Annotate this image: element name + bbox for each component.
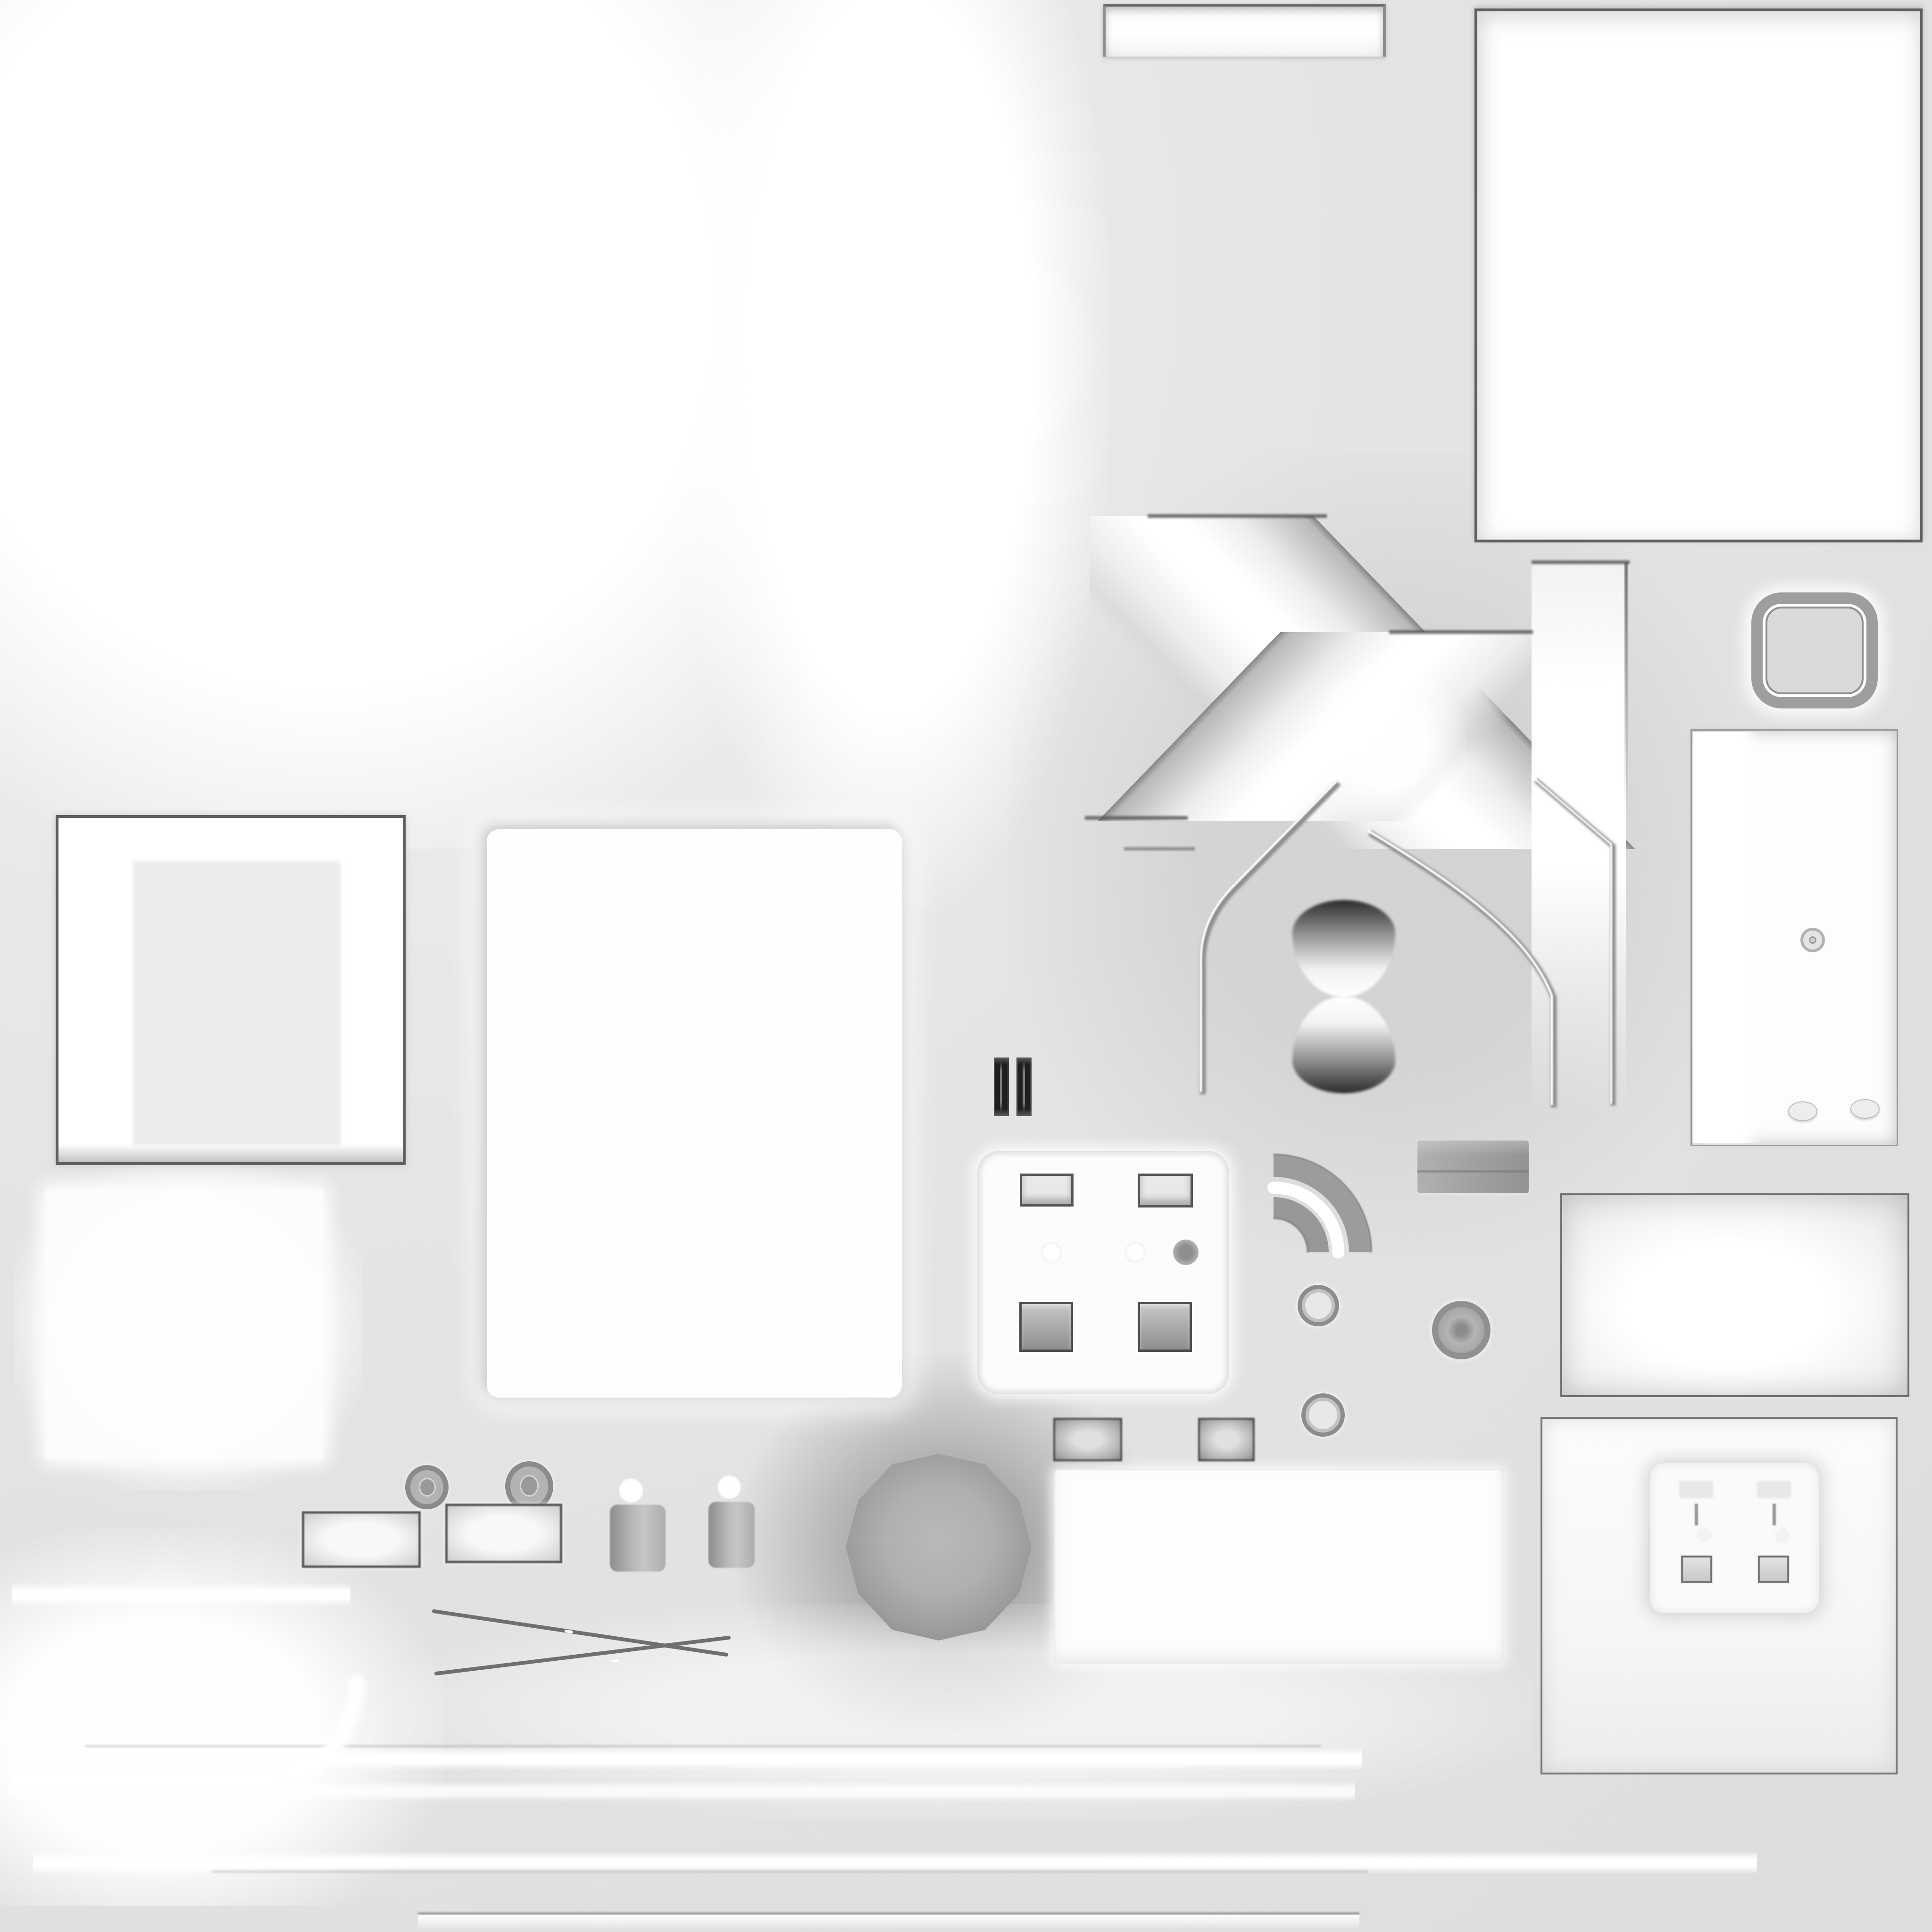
panel-foot-right bbox=[1850, 1099, 1880, 1119]
control-panel bbox=[977, 1151, 1229, 1394]
panel-foot-left bbox=[1788, 1101, 1817, 1121]
streak-corner-band bbox=[12, 1583, 350, 1607]
washer-top bbox=[1298, 1285, 1339, 1326]
strip-4-shadowline bbox=[418, 1912, 1359, 1915]
switch-socket-left bbox=[1681, 1556, 1712, 1583]
left-faint-rect bbox=[45, 1189, 324, 1460]
prong-slot-ridge bbox=[1023, 1061, 1025, 1112]
top-slot-bar bbox=[1103, 4, 1386, 57]
hourglass bbox=[1292, 900, 1395, 1093]
hourglass-top-lobe bbox=[1292, 900, 1395, 997]
texture-canvas bbox=[0, 0, 1932, 1932]
strip-4 bbox=[418, 1915, 1359, 1930]
left-frame-inner-panel bbox=[133, 861, 341, 1145]
panel-dot-dark bbox=[1173, 1240, 1199, 1265]
switch-slot-right bbox=[1773, 1504, 1776, 1525]
panel-dot-mid bbox=[1124, 1241, 1146, 1263]
edge-right-band-side bbox=[1624, 562, 1628, 817]
switch-dot-right bbox=[1774, 1528, 1790, 1543]
right-mid-rect bbox=[1560, 1193, 1909, 1397]
washer-bottom bbox=[1301, 1393, 1345, 1437]
bottom-right-rect bbox=[1541, 1417, 1898, 1774]
prong-slot-left bbox=[994, 1058, 1009, 1116]
cylinder-left bbox=[610, 1505, 666, 1572]
edge-band2-tip bbox=[1085, 816, 1188, 820]
strip-3-shadowline bbox=[212, 1871, 1368, 1873]
bordered-rect-left bbox=[302, 1511, 421, 1568]
white-dot-left bbox=[619, 1478, 643, 1503]
edge-band1-cut bbox=[1124, 847, 1195, 850]
inset-rect-right bbox=[1198, 1418, 1255, 1461]
switch-socket-right bbox=[1758, 1556, 1789, 1583]
prong-slot-ridge bbox=[1000, 1061, 1002, 1112]
panel-left-bright-band bbox=[1693, 732, 1763, 1143]
left-frame-square bbox=[56, 815, 406, 1165]
gray-bar-ridge bbox=[1417, 1170, 1529, 1173]
right-tall-panel bbox=[1690, 729, 1898, 1146]
bottom-center-rect bbox=[1054, 1469, 1503, 1664]
switch-label-left bbox=[1679, 1481, 1713, 1498]
strip-1 bbox=[29, 1747, 1362, 1771]
inset-rect-left bbox=[1053, 1418, 1122, 1461]
cylinder-right bbox=[708, 1502, 755, 1568]
panel-dot-left bbox=[1041, 1242, 1062, 1264]
grommet-left-hole bbox=[419, 1478, 436, 1497]
edge-right-band-top bbox=[1532, 560, 1630, 564]
port-ring bbox=[1432, 1301, 1491, 1359]
panel-window-top-right bbox=[1138, 1174, 1193, 1207]
switch-label-right bbox=[1757, 1481, 1791, 1498]
screen-bezel bbox=[1751, 592, 1878, 708]
right-vertical-band bbox=[1532, 562, 1626, 1116]
panel-grommet-pin bbox=[1809, 936, 1816, 944]
panel-window-top-left bbox=[1020, 1174, 1074, 1207]
prong-slot-right bbox=[1016, 1058, 1032, 1116]
white-dot-right bbox=[717, 1475, 741, 1499]
left-frame-bottom-shade bbox=[58, 1144, 403, 1162]
x-cross-glow bbox=[1307, 660, 1467, 830]
grommet-right-hole bbox=[520, 1475, 539, 1497]
bordered-rect-right bbox=[445, 1504, 562, 1563]
grommet-left bbox=[405, 1465, 449, 1509]
gray-bar bbox=[1417, 1141, 1529, 1193]
top-right-square bbox=[1474, 8, 1923, 542]
switch-panel bbox=[1650, 1463, 1819, 1613]
switch-slot-left bbox=[1695, 1504, 1698, 1525]
panel-grommet bbox=[1800, 928, 1825, 952]
panel-socket-bottom-right bbox=[1138, 1302, 1192, 1352]
panel-socket-bottom-left bbox=[1019, 1302, 1073, 1352]
edge-band1-top bbox=[1148, 514, 1327, 518]
hourglass-bottom-lobe bbox=[1292, 996, 1395, 1093]
big-white-rect bbox=[487, 829, 902, 1398]
switch-dot-left bbox=[1697, 1527, 1712, 1542]
strip-2 bbox=[8, 1781, 1355, 1802]
edge-band2-top bbox=[1389, 630, 1533, 634]
